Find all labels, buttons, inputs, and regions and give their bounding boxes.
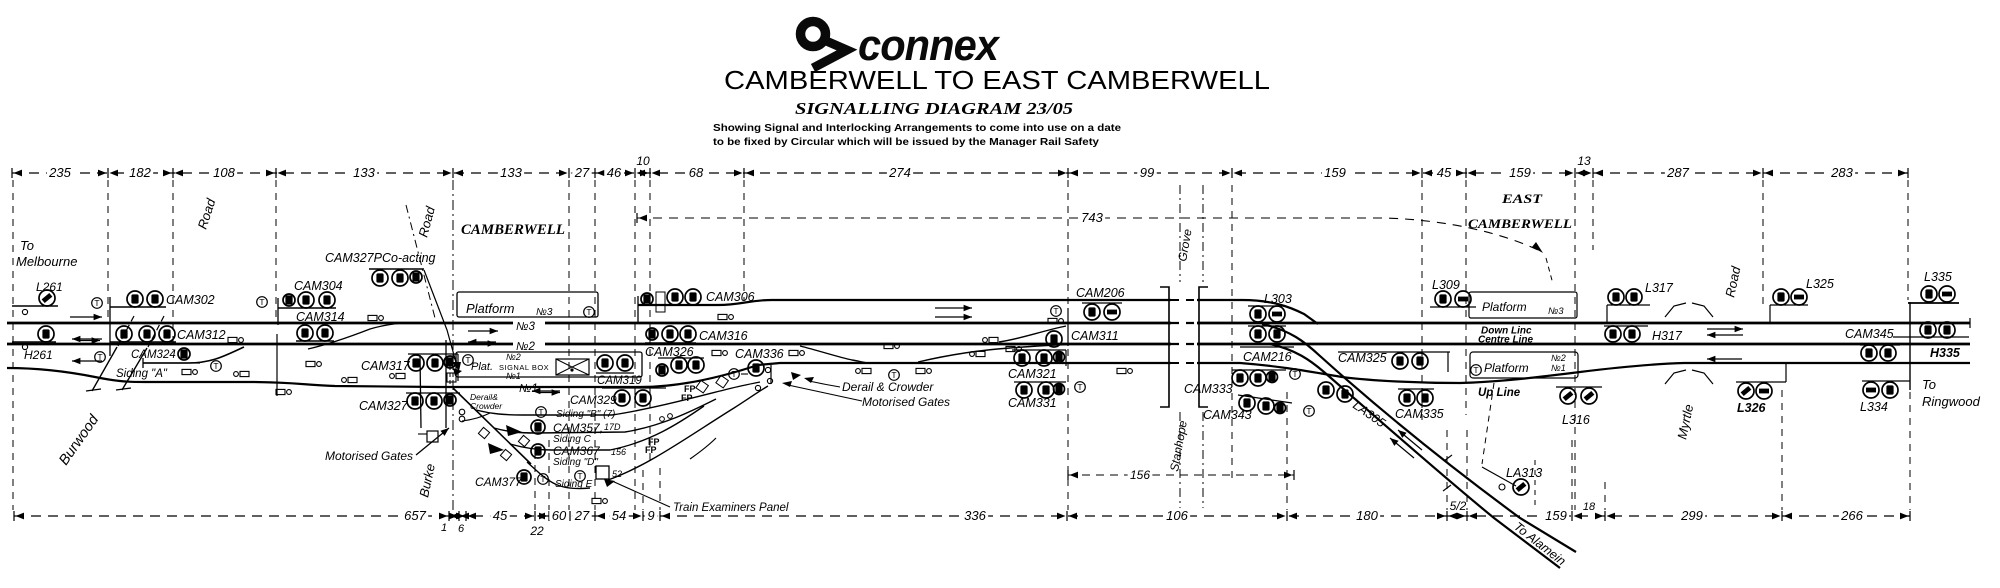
svg-text:159: 159 <box>1324 165 1346 180</box>
svg-text:FP: FP <box>681 393 693 403</box>
svg-text:CAM206: CAM206 <box>1076 286 1125 300</box>
svg-text:L335: L335 <box>1924 270 1952 284</box>
svg-text:5/2: 5/2 <box>1450 499 1467 513</box>
svg-text:Platform: Platform <box>466 301 515 316</box>
svg-text:Co-acting: Co-acting <box>382 251 436 265</box>
svg-text:Train Examiners Panel: Train Examiners Panel <box>673 502 789 514</box>
svg-text:CAM314: CAM314 <box>296 310 345 324</box>
svg-text:H261: H261 <box>24 348 53 362</box>
svg-text:connex: connex <box>858 21 1000 70</box>
svg-text:№3: №3 <box>516 321 535 333</box>
svg-text:Ringwood: Ringwood <box>1922 394 1981 409</box>
svg-text:CAM306: CAM306 <box>706 290 755 304</box>
svg-text:T: T <box>586 307 591 317</box>
svg-text:№2: №2 <box>506 352 521 362</box>
svg-text:CAMBERWELL: CAMBERWELL <box>461 222 565 238</box>
svg-text:45: 45 <box>1437 165 1452 180</box>
svg-text:133: 133 <box>500 165 522 180</box>
svg-text:46: 46 <box>607 165 622 180</box>
svg-text:Motorised Gates: Motorised Gates <box>325 449 413 463</box>
svg-text:10: 10 <box>636 154 650 168</box>
svg-text:№3: №3 <box>536 307 553 318</box>
svg-text:CAMBERWELL TO EAST CAMBERWELL: CAMBERWELL TO EAST CAMBERWELL <box>724 65 1270 95</box>
svg-text:L325: L325 <box>1806 277 1834 291</box>
svg-text:Siding "B" (7): Siding "B" (7) <box>556 409 615 420</box>
svg-text:99: 99 <box>1140 165 1154 180</box>
svg-text:Siding E: Siding E <box>555 479 593 490</box>
svg-text:CAM377: CAM377 <box>475 475 523 489</box>
svg-text:17D: 17D <box>604 422 621 432</box>
svg-text:H317: H317 <box>1652 329 1683 343</box>
svg-text:18: 18 <box>1583 501 1596 513</box>
svg-text:CAM327P: CAM327P <box>325 251 383 265</box>
svg-text:299: 299 <box>1680 508 1703 523</box>
svg-text:L309: L309 <box>1432 278 1460 292</box>
svg-text:CAM319: CAM319 <box>597 375 642 387</box>
svg-text:to be fixed by Circular which: to be fixed by Circular which will be is… <box>713 136 1099 148</box>
svg-text:182: 182 <box>129 165 151 180</box>
svg-text:283: 283 <box>1830 165 1853 180</box>
svg-text:CAMBERWELL: CAMBERWELL <box>1468 216 1572 231</box>
svg-text:T: T <box>891 370 896 380</box>
svg-text:T: T <box>1292 369 1297 379</box>
svg-text:CAM327: CAM327 <box>359 399 409 413</box>
svg-text:T: T <box>538 407 543 417</box>
svg-text:27: 27 <box>574 165 590 180</box>
svg-text:LA313: LA313 <box>1506 466 1542 480</box>
svg-text:Siding "D": Siding "D" <box>553 457 598 468</box>
svg-text:L303: L303 <box>1264 292 1292 306</box>
svg-text:T: T <box>213 361 218 371</box>
svg-text:180: 180 <box>1356 508 1378 523</box>
svg-text:1: 1 <box>441 522 447 534</box>
svg-text:CAM331: CAM331 <box>1008 396 1057 410</box>
svg-text:CAM343: CAM343 <box>1203 408 1252 422</box>
svg-text:CAM316: CAM316 <box>699 329 748 343</box>
svg-text:108: 108 <box>213 165 235 180</box>
svg-text:SIGNALLING DIAGRAM 23/05: SIGNALLING DIAGRAM 23/05 <box>795 99 1073 118</box>
svg-text:Platform: Platform <box>1482 300 1527 314</box>
svg-text:L317: L317 <box>1645 281 1674 295</box>
svg-text:156: 156 <box>611 447 626 457</box>
svg-text:T: T <box>259 297 264 307</box>
svg-text:743: 743 <box>1081 210 1103 225</box>
svg-text:45: 45 <box>493 508 508 523</box>
svg-text:336: 336 <box>964 508 986 523</box>
svg-text:CAM367: CAM367 <box>553 444 601 458</box>
svg-text:Motorised Gates: Motorised Gates <box>862 395 950 409</box>
svg-text:H335: H335 <box>1930 346 1961 360</box>
svg-text:CAM216: CAM216 <box>1243 350 1292 364</box>
svg-text:CAM336: CAM336 <box>735 347 784 361</box>
svg-text:№3: №3 <box>1548 306 1564 317</box>
svg-text:657: 657 <box>404 508 426 523</box>
svg-text:Siding "A": Siding "A" <box>116 368 168 380</box>
svg-text:EAST: EAST <box>1501 191 1544 206</box>
svg-text:L326: L326 <box>1737 401 1767 415</box>
svg-text:Showing Signal and Interlockin: Showing Signal and Interlocking Arrangem… <box>713 122 1121 134</box>
svg-text:CAM312: CAM312 <box>177 328 226 342</box>
svg-text:№1: №1 <box>1551 363 1566 373</box>
svg-text:CAM304: CAM304 <box>294 279 343 293</box>
svg-text:№2: №2 <box>1551 353 1566 363</box>
svg-text:CAM324: CAM324 <box>131 349 176 361</box>
svg-text:CAM321: CAM321 <box>1008 367 1057 381</box>
svg-text:CAM333: CAM333 <box>1184 382 1233 396</box>
svg-text:L334: L334 <box>1860 400 1888 414</box>
svg-text:60: 60 <box>552 508 567 523</box>
svg-text:CAM345: CAM345 <box>1845 327 1894 341</box>
svg-text:133: 133 <box>353 165 375 180</box>
svg-text:To: To <box>20 238 34 253</box>
svg-text:CAM317: CAM317 <box>361 359 411 373</box>
svg-text:T: T <box>465 355 470 365</box>
svg-text:266: 266 <box>1840 508 1863 523</box>
svg-text:274: 274 <box>888 165 911 180</box>
svg-text:T: T <box>1473 365 1478 375</box>
svg-text:CAM329: CAM329 <box>570 393 617 407</box>
svg-text:T: T <box>1306 406 1311 416</box>
svg-text:54: 54 <box>612 508 626 523</box>
svg-text:T: T <box>1077 382 1082 392</box>
svg-text:Derail & Crowder: Derail & Crowder <box>842 380 934 394</box>
svg-text:Centre Line: Centre Line <box>1478 335 1533 346</box>
svg-text:6: 6 <box>458 523 465 535</box>
svg-text:156: 156 <box>1130 468 1150 482</box>
svg-text:235: 235 <box>48 165 71 180</box>
svg-text:CAM335: CAM335 <box>1395 407 1444 421</box>
svg-text:159: 159 <box>1509 165 1531 180</box>
svg-text:Plat.: Plat. <box>471 361 493 373</box>
svg-text:№1: №1 <box>506 371 521 381</box>
svg-text:22: 22 <box>529 524 544 538</box>
svg-text:CAM302: CAM302 <box>166 293 215 307</box>
svg-text:68: 68 <box>689 165 704 180</box>
svg-text:52: 52 <box>612 469 622 479</box>
svg-text:T: T <box>577 471 582 481</box>
svg-text:FP: FP <box>645 445 657 455</box>
svg-text:Up Line: Up Line <box>1478 387 1521 399</box>
svg-text:106: 106 <box>1166 508 1188 523</box>
svg-text:13: 13 <box>1577 154 1591 168</box>
svg-text:To: To <box>1922 377 1936 392</box>
svg-text:CAM325: CAM325 <box>1338 351 1387 365</box>
svg-text:L316: L316 <box>1562 413 1590 427</box>
svg-text:Melbourne: Melbourne <box>16 254 77 269</box>
svg-text:287: 287 <box>1666 165 1689 180</box>
svg-text:L261: L261 <box>36 280 63 294</box>
svg-text:T: T <box>731 369 736 379</box>
svg-text:T: T <box>94 298 99 308</box>
svg-text:159: 159 <box>1545 508 1567 523</box>
svg-text:CAM311: CAM311 <box>1071 329 1119 343</box>
svg-text:T: T <box>1053 306 1058 316</box>
svg-text:№1: №1 <box>519 383 538 395</box>
svg-text:CAM326: CAM326 <box>645 345 694 359</box>
svg-text:27: 27 <box>574 508 590 523</box>
svg-text:9: 9 <box>647 508 654 523</box>
svg-text:Crowder: Crowder <box>470 401 503 411</box>
svg-text:Platform: Platform <box>1484 361 1529 375</box>
